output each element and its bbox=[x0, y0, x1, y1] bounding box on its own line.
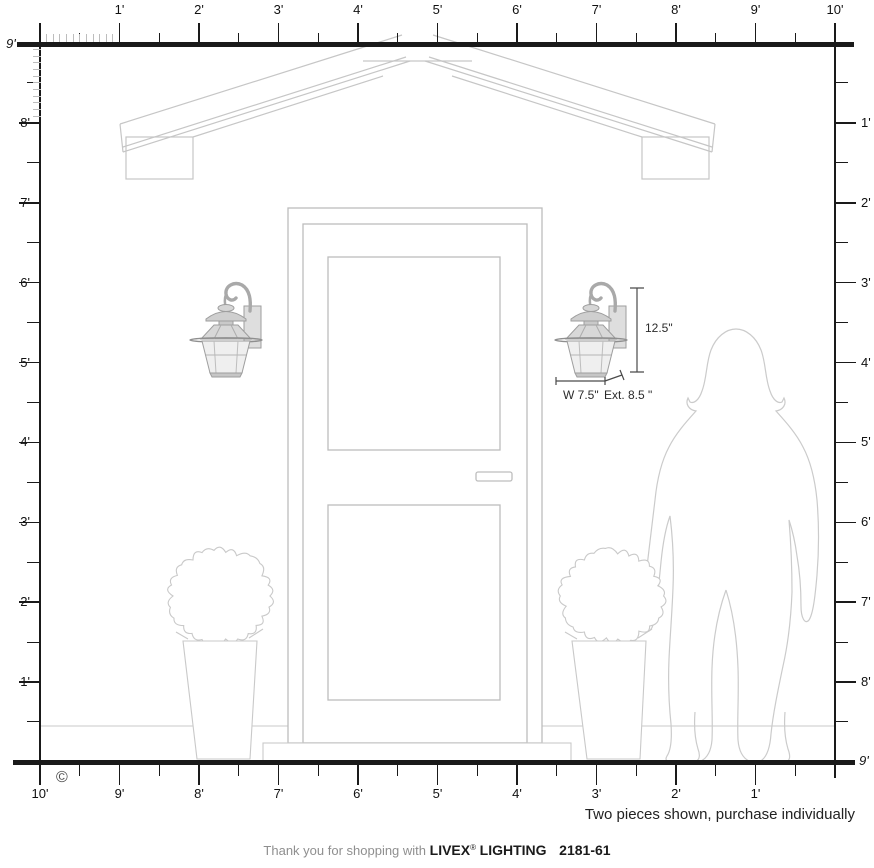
height-dimension-line bbox=[630, 288, 644, 372]
ruler-tick bbox=[835, 202, 856, 204]
top-ruler-bar bbox=[17, 42, 854, 47]
bottom-ruler-label: 9' bbox=[106, 786, 134, 801]
ruler-tick bbox=[636, 762, 637, 776]
ruler-tick bbox=[278, 23, 280, 43]
top-ruler-label: 8' bbox=[664, 2, 688, 17]
bottom-ruler-label: 2' bbox=[662, 786, 690, 801]
ruler-tick bbox=[27, 721, 40, 722]
ruler-tick bbox=[238, 762, 239, 776]
bottom-ruler-label: 3' bbox=[583, 786, 611, 801]
bottom-ruler-label: 7' bbox=[265, 786, 293, 801]
ruler-tick bbox=[835, 162, 848, 163]
scale-diagram: 1'2'3'4'5'6'7'8'9'10'9'8'7'6'5'4'3'2'1'1… bbox=[0, 0, 874, 868]
ruler-tick bbox=[198, 762, 200, 785]
ruler-tick bbox=[835, 282, 856, 284]
footer-prefix: Thank you for shopping with bbox=[263, 843, 426, 858]
inch-tick bbox=[33, 82, 41, 83]
left-ruler-line bbox=[39, 43, 41, 768]
ruler-tick bbox=[27, 562, 40, 563]
top-ruler-label: 3' bbox=[267, 2, 291, 17]
ruler-tick bbox=[715, 762, 716, 776]
planter-right bbox=[572, 641, 646, 759]
inch-tick bbox=[106, 34, 107, 42]
ruler-tick bbox=[835, 362, 856, 364]
left-ruler-label: 7' bbox=[2, 195, 30, 210]
woman-silhouette bbox=[642, 329, 819, 762]
ruler-tick bbox=[159, 762, 160, 776]
left-ruler-label: 6' bbox=[2, 275, 30, 290]
inch-tick bbox=[79, 34, 80, 42]
right-ruler-label: 1' bbox=[861, 115, 871, 130]
ruler-tick bbox=[636, 33, 637, 43]
right-ruler-corner-label: 9' bbox=[859, 753, 869, 768]
ruler-tick bbox=[835, 522, 856, 524]
ruler-tick bbox=[835, 721, 848, 722]
ruler-tick bbox=[119, 762, 121, 785]
bottom-ruler-bar bbox=[13, 760, 855, 765]
ruler-tick bbox=[675, 23, 677, 43]
ruler-tick bbox=[835, 442, 856, 444]
ruler-tick bbox=[357, 23, 359, 43]
top-ruler-label: 10' bbox=[823, 2, 847, 17]
ruler-tick bbox=[437, 762, 439, 785]
inch-tick bbox=[33, 109, 41, 110]
ruler-tick bbox=[238, 33, 239, 43]
wall-lantern-right bbox=[555, 284, 627, 377]
bottom-ruler-label: 1' bbox=[742, 786, 770, 801]
ruler-tick bbox=[278, 762, 280, 785]
left-ruler-label: 3' bbox=[2, 514, 30, 529]
roof-sketch bbox=[120, 35, 715, 179]
ruler-tick bbox=[596, 23, 598, 43]
inch-tick bbox=[86, 34, 87, 42]
wall-lantern-left bbox=[190, 284, 262, 377]
height-dimension-label: 12.5" bbox=[645, 321, 673, 335]
ruler-tick bbox=[27, 482, 40, 483]
front-door bbox=[288, 208, 542, 743]
left-ruler-label: 5' bbox=[2, 355, 30, 370]
right-ruler-label: 7' bbox=[861, 594, 871, 609]
ruler-tick bbox=[795, 762, 796, 776]
purchase-note: Two pieces shown, purchase individually bbox=[585, 806, 855, 823]
ruler-tick bbox=[556, 762, 557, 776]
top-ruler-label: 1' bbox=[108, 2, 132, 17]
ruler-tick bbox=[755, 762, 757, 785]
left-ruler-label: 2' bbox=[2, 594, 30, 609]
extension-dimension-label: Ext. 8.5 " bbox=[604, 388, 652, 402]
ruler-tick bbox=[79, 762, 80, 776]
ruler-tick bbox=[159, 33, 160, 43]
ruler-tick bbox=[437, 23, 439, 43]
inch-tick bbox=[33, 116, 41, 117]
left-ruler-origin-label: 9' bbox=[6, 36, 16, 51]
ruler-tick bbox=[835, 681, 856, 683]
inch-tick bbox=[33, 62, 41, 63]
ruler-tick bbox=[835, 642, 848, 643]
inch-tick bbox=[33, 69, 41, 70]
inch-tick bbox=[46, 34, 47, 42]
width-dimension-label: W 7.5" bbox=[563, 388, 599, 402]
bottom-ruler-label: 10' bbox=[26, 786, 54, 801]
ruler-tick bbox=[835, 402, 848, 403]
inch-tick bbox=[33, 56, 41, 57]
left-ruler-label: 1' bbox=[2, 674, 30, 689]
top-ruler-label: 6' bbox=[505, 2, 529, 17]
inch-tick bbox=[93, 34, 94, 42]
inch-tick bbox=[33, 49, 41, 50]
ruler-tick bbox=[834, 23, 836, 43]
ruler-tick bbox=[835, 562, 848, 563]
inch-tick bbox=[33, 102, 41, 103]
brand-suffix: LIGHTING bbox=[480, 842, 547, 858]
ruler-tick bbox=[357, 762, 359, 785]
right-ruler-label: 3' bbox=[861, 275, 871, 290]
top-ruler-label: 7' bbox=[585, 2, 609, 17]
inch-tick bbox=[112, 34, 113, 42]
ruler-tick bbox=[318, 33, 319, 43]
ruler-tick bbox=[27, 322, 40, 323]
inch-tick bbox=[33, 76, 41, 77]
ruler-tick bbox=[27, 242, 40, 243]
inch-tick bbox=[33, 89, 41, 90]
ruler-tick bbox=[39, 23, 41, 43]
inch-tick bbox=[33, 96, 41, 97]
right-ruler-label: 8' bbox=[861, 674, 871, 689]
left-ruler-label: 4' bbox=[2, 434, 30, 449]
ruler-tick bbox=[397, 762, 398, 776]
ruler-tick bbox=[596, 762, 598, 785]
ruler-tick bbox=[397, 33, 398, 43]
ruler-tick bbox=[27, 402, 40, 403]
bottom-ruler-label: 8' bbox=[185, 786, 213, 801]
top-ruler-label: 9' bbox=[744, 2, 768, 17]
topiary-ball bbox=[168, 547, 274, 645]
ruler-tick bbox=[835, 601, 856, 603]
ruler-tick bbox=[795, 33, 796, 43]
ruler-tick bbox=[27, 162, 40, 163]
ruler-tick bbox=[198, 23, 200, 43]
inch-tick bbox=[99, 34, 100, 42]
ruler-tick bbox=[835, 242, 848, 243]
ruler-tick bbox=[715, 33, 716, 43]
planter-left bbox=[183, 641, 257, 759]
right-ruler-label: 6' bbox=[861, 514, 871, 529]
brand-name: LIVEX bbox=[430, 842, 470, 858]
footer-text: Thank you for shopping with LIVEX® LIGHT… bbox=[0, 842, 874, 858]
ruler-tick bbox=[835, 122, 856, 124]
inch-tick bbox=[59, 34, 60, 42]
topiary-ball bbox=[558, 548, 666, 643]
ruler-tick bbox=[675, 762, 677, 785]
inch-tick bbox=[66, 34, 67, 42]
top-ruler-label: 5' bbox=[426, 2, 450, 17]
inch-tick bbox=[73, 34, 74, 42]
ruler-tick bbox=[755, 23, 757, 43]
house-sketch bbox=[0, 0, 874, 868]
ruler-tick bbox=[477, 33, 478, 43]
ruler-tick bbox=[27, 642, 40, 643]
top-ruler-label: 4' bbox=[346, 2, 370, 17]
ruler-tick bbox=[516, 23, 518, 43]
ruler-tick bbox=[119, 23, 121, 43]
ruler-tick bbox=[477, 762, 478, 776]
ruler-tick bbox=[318, 762, 319, 776]
right-ruler-label: 4' bbox=[861, 355, 871, 370]
right-ruler-line bbox=[834, 43, 836, 778]
ruler-tick bbox=[39, 762, 41, 785]
left-ruler-label: 8' bbox=[2, 115, 30, 130]
ruler-tick bbox=[835, 322, 848, 323]
ruler-tick bbox=[556, 33, 557, 43]
bottom-ruler-label: 5' bbox=[424, 786, 452, 801]
model-number: 2181-61 bbox=[559, 842, 610, 858]
bottom-ruler-label: 6' bbox=[344, 786, 372, 801]
bottom-ruler-label: 4' bbox=[503, 786, 531, 801]
ruler-tick bbox=[835, 82, 848, 83]
top-ruler-label: 2' bbox=[187, 2, 211, 17]
registered-mark: ® bbox=[470, 843, 476, 852]
ruler-tick bbox=[835, 482, 848, 483]
right-ruler-label: 2' bbox=[861, 195, 871, 210]
right-ruler-label: 5' bbox=[861, 434, 871, 449]
copyright-symbol: © bbox=[56, 769, 68, 787]
inch-tick bbox=[53, 34, 54, 42]
ruler-tick bbox=[516, 762, 518, 785]
